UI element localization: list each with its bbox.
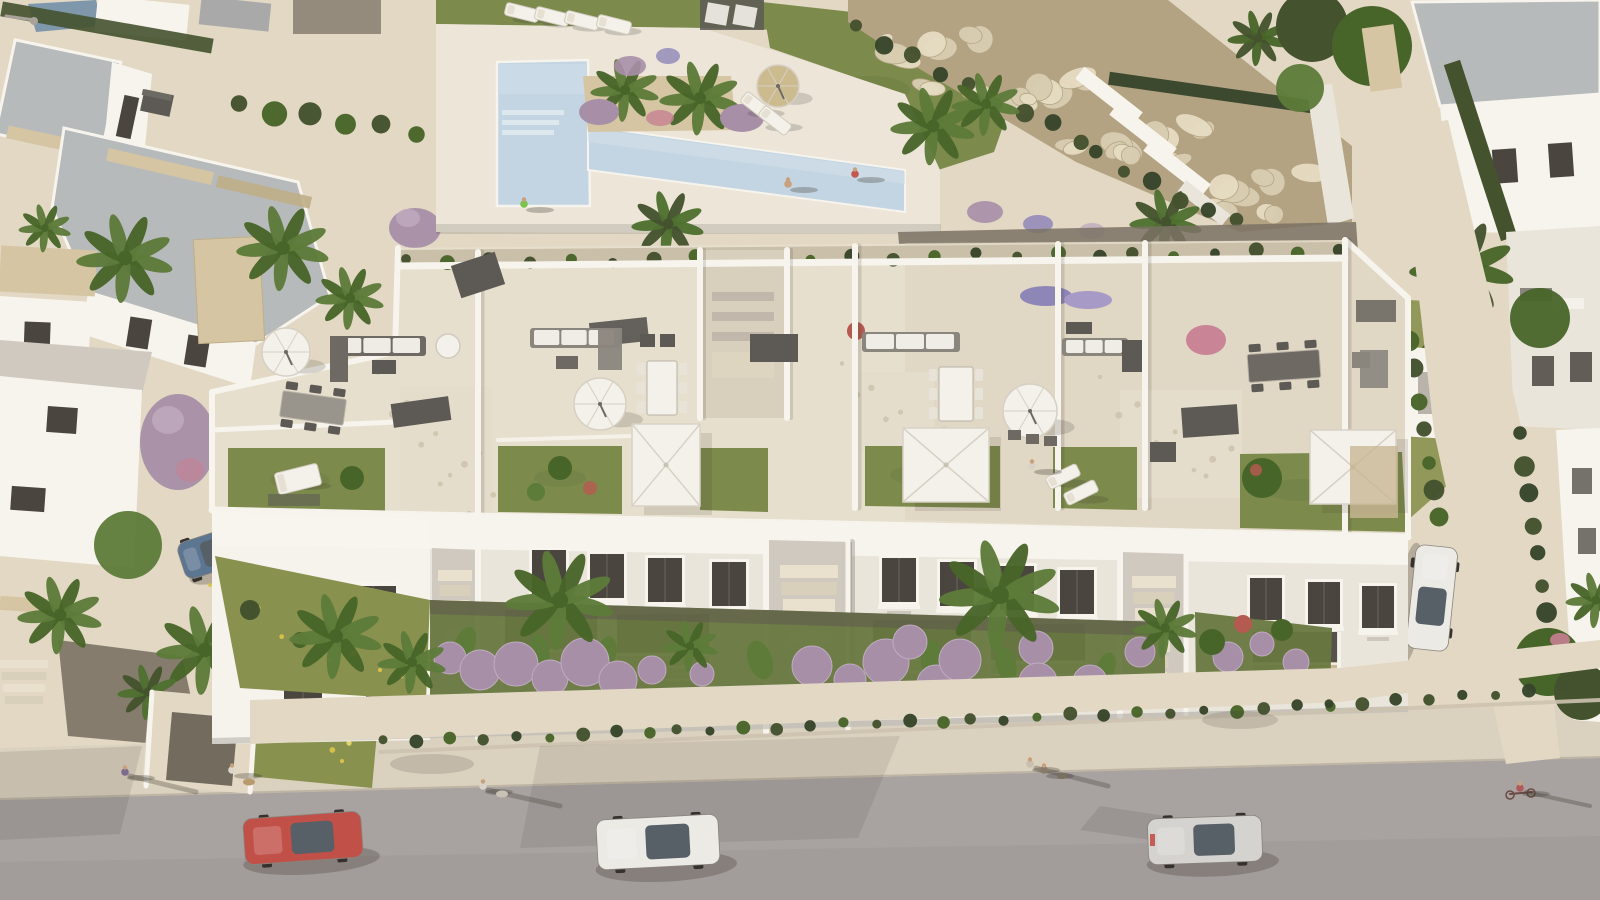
aerial-architectural-render [0,0,1600,900]
render-canvas [0,0,1600,900]
